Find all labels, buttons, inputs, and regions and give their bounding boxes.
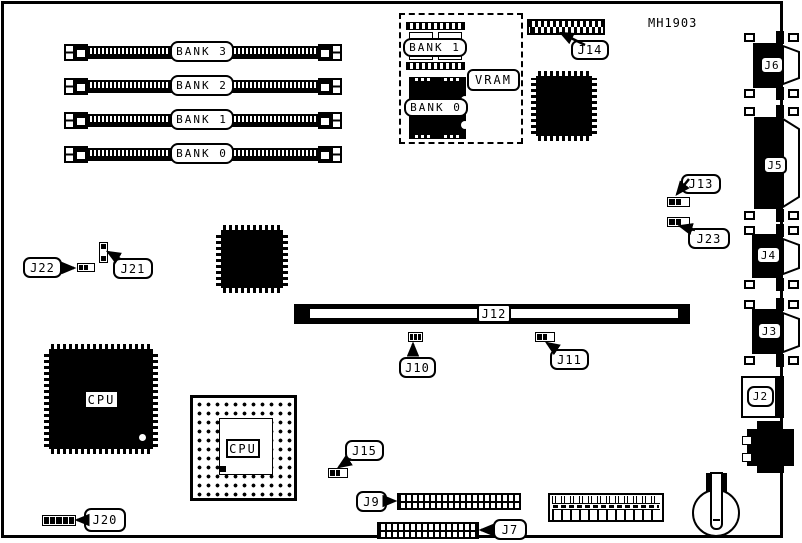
edge-nub <box>776 278 784 291</box>
edge-nub <box>776 87 784 100</box>
screw-tab <box>788 211 799 220</box>
dip-chip-pins <box>406 62 465 70</box>
bank2-label: BANK 2 <box>170 75 234 96</box>
cpu-pga-socket: CPU <box>190 395 297 501</box>
j2-connector-edge <box>775 376 784 418</box>
din-tab <box>742 436 752 445</box>
dip-chip-pins <box>411 134 434 139</box>
pga-pin1-mark <box>220 466 226 472</box>
battery-clip-tick <box>713 519 720 521</box>
power-connector <box>548 493 664 522</box>
screw-tab <box>788 226 799 235</box>
j14-callout: J14 <box>571 40 609 60</box>
j15-jumper <box>328 468 348 478</box>
j23-jumper <box>667 217 690 227</box>
simm-slot-bank0: BANK 0 <box>64 146 342 163</box>
dip-chip-pins <box>440 77 463 82</box>
bank1-label: BANK 1 <box>170 109 234 130</box>
j13-callout: J13 <box>681 174 721 194</box>
j14-header <box>527 19 605 35</box>
j2-callout: J2 <box>747 386 774 407</box>
vram-bank0-chip-group: BANK 0 <box>409 77 466 139</box>
vram-label: VRAM <box>467 69 520 91</box>
screw-tab <box>788 107 799 116</box>
j5-callout: J5 <box>763 156 787 174</box>
j22-jumper <box>77 263 95 272</box>
cpu-pin1-dot <box>139 434 146 441</box>
chip-notch <box>461 121 469 129</box>
screw-tab <box>744 280 755 289</box>
j6-shell <box>783 46 799 84</box>
din-connector-body <box>747 429 794 466</box>
j21-callout: J21 <box>113 258 153 279</box>
j4-shell <box>783 239 799 274</box>
simm-latch-icon <box>74 112 88 129</box>
j9-callout: J9 <box>356 491 387 512</box>
simm-clip-icon <box>331 78 342 95</box>
simm-latch-icon <box>318 44 332 61</box>
dip-chip-pins <box>440 134 463 139</box>
screw-tab <box>744 33 755 42</box>
j22-callout: J22 <box>23 257 62 278</box>
screw-tab <box>788 89 799 98</box>
simm-latch-icon <box>74 78 88 95</box>
din-tab <box>742 453 752 462</box>
j6-callout: J6 <box>760 56 784 74</box>
simm-slot-bank1: BANK 1 <box>64 112 342 129</box>
j15-callout: J15 <box>345 440 384 461</box>
simm-latch-icon <box>318 112 332 129</box>
j23-callout: J23 <box>688 228 730 249</box>
vram-bank0-label: BANK 0 <box>404 98 468 117</box>
j11-callout: J11 <box>550 349 589 370</box>
screw-tab <box>744 356 755 365</box>
bank0-label: BANK 0 <box>170 143 234 164</box>
edge-nub <box>776 354 784 367</box>
dip-chip-pins <box>411 77 434 82</box>
simm-latch-icon <box>74 44 88 61</box>
power-connector-clips <box>552 496 660 504</box>
screw-tab <box>744 211 755 220</box>
j13-jumper <box>667 197 690 207</box>
screw-tab <box>788 280 799 289</box>
j7-callout: J7 <box>493 519 527 540</box>
j20-callout: J20 <box>84 508 126 532</box>
cpu-pga-label: CPU <box>226 439 260 458</box>
screw-tab <box>744 300 755 309</box>
chipset-chip <box>216 225 288 293</box>
din-connector-bottom <box>757 466 784 473</box>
simm-clip-icon <box>331 146 342 163</box>
simm-slot-bank3: BANK 3 <box>64 44 342 61</box>
motherboard-diagram: BANK 3 BANK 2 BANK 1 BANK 0 BANK 1 <box>0 0 802 543</box>
screw-tab <box>744 107 755 116</box>
j3-shell <box>783 313 799 352</box>
j7-header <box>377 522 479 539</box>
vram-bank1-chip-group: BANK 1 <box>406 22 465 70</box>
j10-jumper <box>408 332 423 342</box>
cpu-qfp-chip: CPU <box>44 344 158 454</box>
part-number: MH1903 <box>648 16 697 30</box>
vram-bank1-label: BANK 1 <box>403 38 467 57</box>
cpu-qfp-label: CPU <box>84 390 119 409</box>
power-connector-pins <box>552 509 660 520</box>
dip-chip-pins <box>406 22 465 30</box>
simm-slot-bank2: BANK 2 <box>64 78 342 95</box>
simm-latch-icon <box>318 146 332 163</box>
j9-header <box>397 493 521 510</box>
simm-latch-icon <box>74 146 88 163</box>
screw-tab <box>788 33 799 42</box>
edge-nub <box>776 209 784 222</box>
j20-header <box>42 515 76 526</box>
simm-latch-icon <box>318 78 332 95</box>
power-connector-divider <box>553 505 659 508</box>
j21-jumper <box>99 242 108 263</box>
j12-callout: J12 <box>477 304 511 323</box>
screw-tab <box>788 300 799 309</box>
screw-tab <box>744 89 755 98</box>
simm-clip-icon <box>331 44 342 61</box>
j3-callout: J3 <box>757 322 782 340</box>
j11-jumper <box>535 332 555 342</box>
video-chip <box>531 71 597 141</box>
battery-clip-stem <box>710 472 723 530</box>
simm-clip-icon <box>331 112 342 129</box>
bank3-label: BANK 3 <box>170 41 234 62</box>
j4-callout: J4 <box>756 246 781 264</box>
screw-tab <box>788 356 799 365</box>
j10-callout: J10 <box>399 357 436 378</box>
